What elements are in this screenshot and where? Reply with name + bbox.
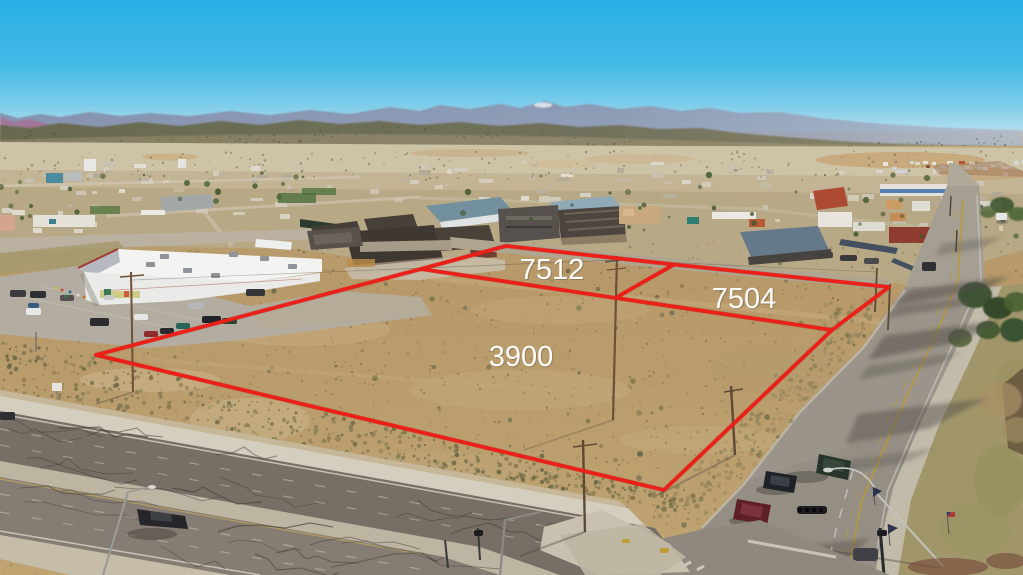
svg-text:3900: 3900 [489, 341, 554, 373]
svg-text:7512: 7512 [520, 254, 585, 286]
svg-text:7504: 7504 [712, 283, 777, 315]
